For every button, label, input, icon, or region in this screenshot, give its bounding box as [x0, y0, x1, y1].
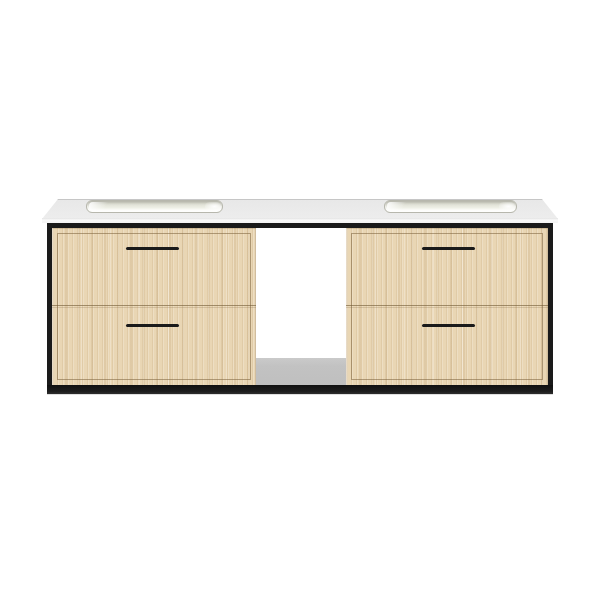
drawer-bank-left: [52, 228, 256, 385]
drawer-divider-right: [346, 305, 548, 306]
sink-basin-right: [384, 200, 517, 213]
drawer-pull-top-left: [126, 247, 179, 250]
open-shelf-floor: [256, 358, 346, 385]
metal-frame-right-rail: [548, 223, 553, 394]
drawer-divider-left: [52, 305, 256, 306]
drawer-bank-right: [346, 228, 548, 385]
vanity-product-photo: [0, 0, 600, 600]
metal-frame-bottom-rail: [47, 385, 553, 394]
open-shelf-compartment: [256, 228, 346, 385]
drawer-fronts-outline-left: [57, 233, 251, 380]
sink-basin-left: [86, 200, 223, 213]
drawer-fronts-outline-right: [351, 233, 543, 380]
drawer-pull-top-right: [422, 247, 475, 250]
drawer-pull-bottom-left: [126, 324, 179, 327]
product-image-canvas: [0, 0, 600, 600]
drawer-pull-bottom-right: [422, 324, 475, 327]
